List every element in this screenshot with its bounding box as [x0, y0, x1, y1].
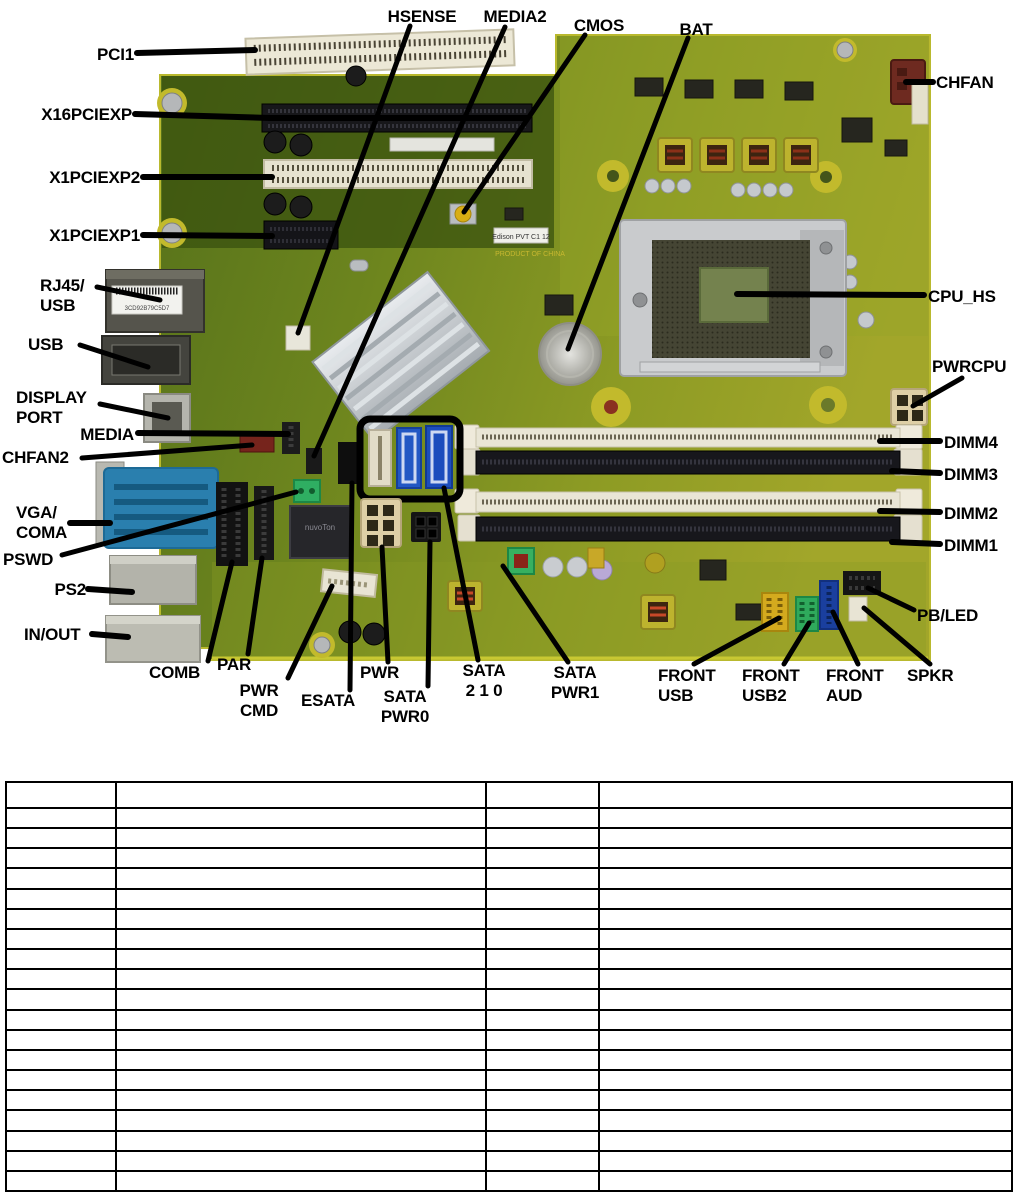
manual-page: 3CD92B79C5D7	[0, 0, 1017, 1194]
silkscreen-text: PRODUCT OF CHINA	[495, 251, 565, 258]
table-cell	[599, 969, 1012, 989]
table-cell	[6, 929, 116, 949]
leader-media	[138, 433, 288, 434]
table-cell	[116, 989, 486, 1009]
callout-par: PAR	[217, 655, 265, 675]
usb-port	[102, 336, 190, 384]
cpu-socket	[620, 220, 846, 376]
table-row	[6, 1050, 1012, 1070]
table-cell	[6, 1110, 116, 1130]
dimm3-slot	[458, 449, 922, 475]
callout-pwr-cmd: PWR CMD	[230, 681, 288, 721]
system-board-diagram: 3CD92B79C5D7	[0, 0, 1017, 745]
table-cell	[486, 949, 599, 969]
table-cell	[116, 848, 486, 868]
callout-cmos: CMOS	[560, 16, 638, 36]
table-cell	[599, 808, 1012, 828]
table-cell	[6, 969, 116, 989]
leader-dimm1	[892, 542, 940, 544]
callout-cpu-hs: CPU_HS	[928, 287, 1010, 307]
callout-esata: ESATA	[301, 691, 369, 711]
table-cell	[486, 808, 599, 828]
table-cell	[486, 1110, 599, 1130]
table-cell	[599, 1090, 1012, 1110]
table-row	[6, 808, 1012, 828]
sata-ports	[369, 426, 452, 488]
table-cell	[599, 848, 1012, 868]
table-row	[6, 1030, 1012, 1050]
x1pciexp1-slot	[264, 221, 338, 249]
callout-rj45-usb: RJ45/ USB	[40, 276, 96, 316]
table-row	[6, 909, 1012, 929]
callout-chfan: CHFAN	[936, 73, 1010, 93]
leader-cpu-hs	[737, 294, 924, 295]
table-cell	[599, 1030, 1012, 1050]
table-cell	[116, 1070, 486, 1090]
table-cell	[486, 848, 599, 868]
table-cell	[599, 868, 1012, 888]
table-cell	[116, 1131, 486, 1151]
table-cell	[6, 889, 116, 909]
comb-header	[216, 482, 248, 566]
table-cell	[599, 782, 1012, 808]
table-cell	[6, 1171, 116, 1191]
callout-front-aud: FRONT AUD	[826, 666, 894, 706]
callout-sata-210: SATA 2 1 0	[456, 661, 512, 701]
pci1-slot	[245, 29, 514, 74]
table-cell	[6, 868, 116, 888]
callout-sata-pwr1: SATA PWR1	[546, 663, 604, 703]
callout-dimm4: DIMM4	[944, 433, 1012, 453]
table-cell	[116, 929, 486, 949]
table-cell	[486, 868, 599, 888]
callout-dimm1: DIMM1	[944, 536, 1012, 556]
table-cell	[486, 782, 599, 808]
table-cell	[599, 1171, 1012, 1191]
leader-x16pciexp	[135, 114, 270, 118]
leader-pci1	[137, 50, 255, 53]
table-row	[6, 989, 1012, 1009]
callout-usb: USB	[28, 335, 80, 355]
callout-comb: COMB	[149, 663, 215, 683]
callout-in-out: IN/OUT	[24, 625, 94, 645]
table-row	[6, 1131, 1012, 1151]
edge-connector	[912, 84, 928, 124]
table-cell	[6, 949, 116, 969]
callout-display-port: DISPLAY PORT	[16, 388, 110, 428]
table-cell	[116, 828, 486, 848]
spec-table-body	[6, 782, 1012, 1191]
callout-sata-pwr0: SATA PWR0	[374, 687, 436, 727]
table-cell	[599, 949, 1012, 969]
callout-media2: MEDIA2	[472, 7, 558, 27]
table-cell	[599, 1110, 1012, 1130]
media-header	[282, 422, 300, 454]
leader-sata-pwr0	[428, 542, 430, 686]
callout-hsense: HSENSE	[376, 7, 468, 27]
pwrcpu-connector	[891, 389, 927, 425]
callout-front-usb2: FRONT USB2	[742, 666, 814, 706]
table-cell	[599, 1010, 1012, 1030]
motherboard-photo: 3CD92B79C5D7	[0, 0, 1017, 745]
table-row	[6, 929, 1012, 949]
leader-x1pciexp1	[143, 235, 272, 236]
table-cell	[116, 1010, 486, 1030]
table-cell	[6, 1010, 116, 1030]
table-cell	[116, 782, 486, 808]
table-cell	[486, 929, 599, 949]
leader-dimm2	[880, 511, 940, 512]
table-cell	[599, 929, 1012, 949]
table-cell	[6, 1090, 116, 1110]
svg-text:Edison PVT C1 12: Edison PVT C1 12	[492, 234, 550, 241]
table-row	[6, 889, 1012, 909]
table-cell	[486, 828, 599, 848]
table-row	[6, 848, 1012, 868]
table-cell	[6, 848, 116, 868]
dimm4-slot	[455, 425, 922, 449]
table-cell	[486, 1131, 599, 1151]
callout-pb-led: PB/LED	[917, 606, 993, 626]
table-cell	[6, 1050, 116, 1070]
dimm2-slot	[455, 489, 922, 513]
table-cell	[599, 889, 1012, 909]
dimm1-slot	[458, 515, 922, 541]
table-row	[6, 1110, 1012, 1130]
table-cell	[486, 1030, 599, 1050]
table-cell	[599, 1151, 1012, 1171]
leader-dimm3	[892, 471, 940, 473]
callout-dimm3: DIMM3	[944, 465, 1012, 485]
table-cell	[6, 1070, 116, 1090]
table-cell	[486, 1151, 599, 1171]
ps2-port	[110, 556, 196, 604]
pwr-connector	[361, 499, 401, 547]
table-cell	[116, 1151, 486, 1171]
vga-port	[96, 462, 218, 548]
callout-media: MEDIA	[70, 425, 134, 445]
table-cell	[6, 989, 116, 1009]
table-cell	[486, 909, 599, 929]
table-cell	[486, 1050, 599, 1070]
table-row	[6, 1171, 1012, 1191]
table-cell	[6, 1030, 116, 1050]
table-cell	[116, 909, 486, 929]
table-row	[6, 1070, 1012, 1090]
callout-x16pciexp: X16PCIEXP	[14, 105, 132, 125]
table-cell	[6, 828, 116, 848]
callout-vga-coma: VGA/ COMA	[16, 503, 86, 543]
table-cell	[6, 1151, 116, 1171]
callout-chfan2: CHFAN2	[2, 448, 88, 468]
esata-connector	[338, 442, 358, 484]
table-cell	[6, 909, 116, 929]
table-row	[6, 1090, 1012, 1110]
chip-label: nuvoTon	[305, 523, 335, 532]
callout-pswd: PSWD	[3, 550, 71, 570]
table-cell	[116, 969, 486, 989]
sata-pwr0-connector	[411, 512, 441, 542]
spec-table	[5, 781, 1013, 1192]
table-cell	[116, 889, 486, 909]
barcode-label: 3CD92B79C5D7	[125, 306, 170, 312]
leader-esata	[350, 483, 352, 690]
crystal	[350, 260, 368, 271]
table-cell	[116, 808, 486, 828]
table-cell	[116, 1030, 486, 1050]
table-row	[6, 782, 1012, 808]
table-cell	[486, 1090, 599, 1110]
callout-pwrcpu: PWRCPU	[932, 357, 1016, 377]
table-cell	[486, 969, 599, 989]
table-row	[6, 1010, 1012, 1030]
callout-front-usb: FRONT USB	[658, 666, 728, 706]
table-cell	[599, 989, 1012, 1009]
callout-ps2: PS2	[36, 580, 86, 600]
table-row	[6, 949, 1012, 969]
table-row	[6, 868, 1012, 888]
table-cell	[599, 828, 1012, 848]
table-cell	[486, 889, 599, 909]
table-row	[6, 1151, 1012, 1171]
table-cell	[486, 1070, 599, 1090]
table-cell	[116, 868, 486, 888]
nuvoton-chip: nuvoTon	[290, 506, 350, 558]
table-cell	[486, 1010, 599, 1030]
table-cell	[599, 1070, 1012, 1090]
table-cell	[486, 1171, 599, 1191]
table-cell	[6, 808, 116, 828]
table-cell	[599, 1050, 1012, 1070]
table-row	[6, 828, 1012, 848]
table-cell	[116, 1090, 486, 1110]
table-cell	[599, 909, 1012, 929]
callout-pci1: PCI1	[40, 45, 134, 65]
table-cell	[116, 1050, 486, 1070]
leader-in-out	[92, 634, 128, 637]
callout-x1pciexp2: X1PCIEXP2	[14, 168, 140, 188]
table-cell	[6, 1131, 116, 1151]
leader-ps2	[88, 589, 132, 592]
table-row	[6, 969, 1012, 989]
battery	[539, 323, 601, 385]
callout-bat: BAT	[664, 20, 728, 40]
callout-x1pciexp1: X1PCIEXP1	[14, 226, 140, 246]
table-cell	[116, 1110, 486, 1130]
table-cell	[486, 989, 599, 1009]
table-cell	[116, 949, 486, 969]
callout-pwr: PWR	[360, 663, 406, 683]
callout-dimm2: DIMM2	[944, 504, 1012, 524]
table-cell	[6, 782, 116, 808]
table-cell	[116, 1171, 486, 1191]
callout-spkr: SPKR	[907, 666, 967, 686]
table-cell	[599, 1131, 1012, 1151]
